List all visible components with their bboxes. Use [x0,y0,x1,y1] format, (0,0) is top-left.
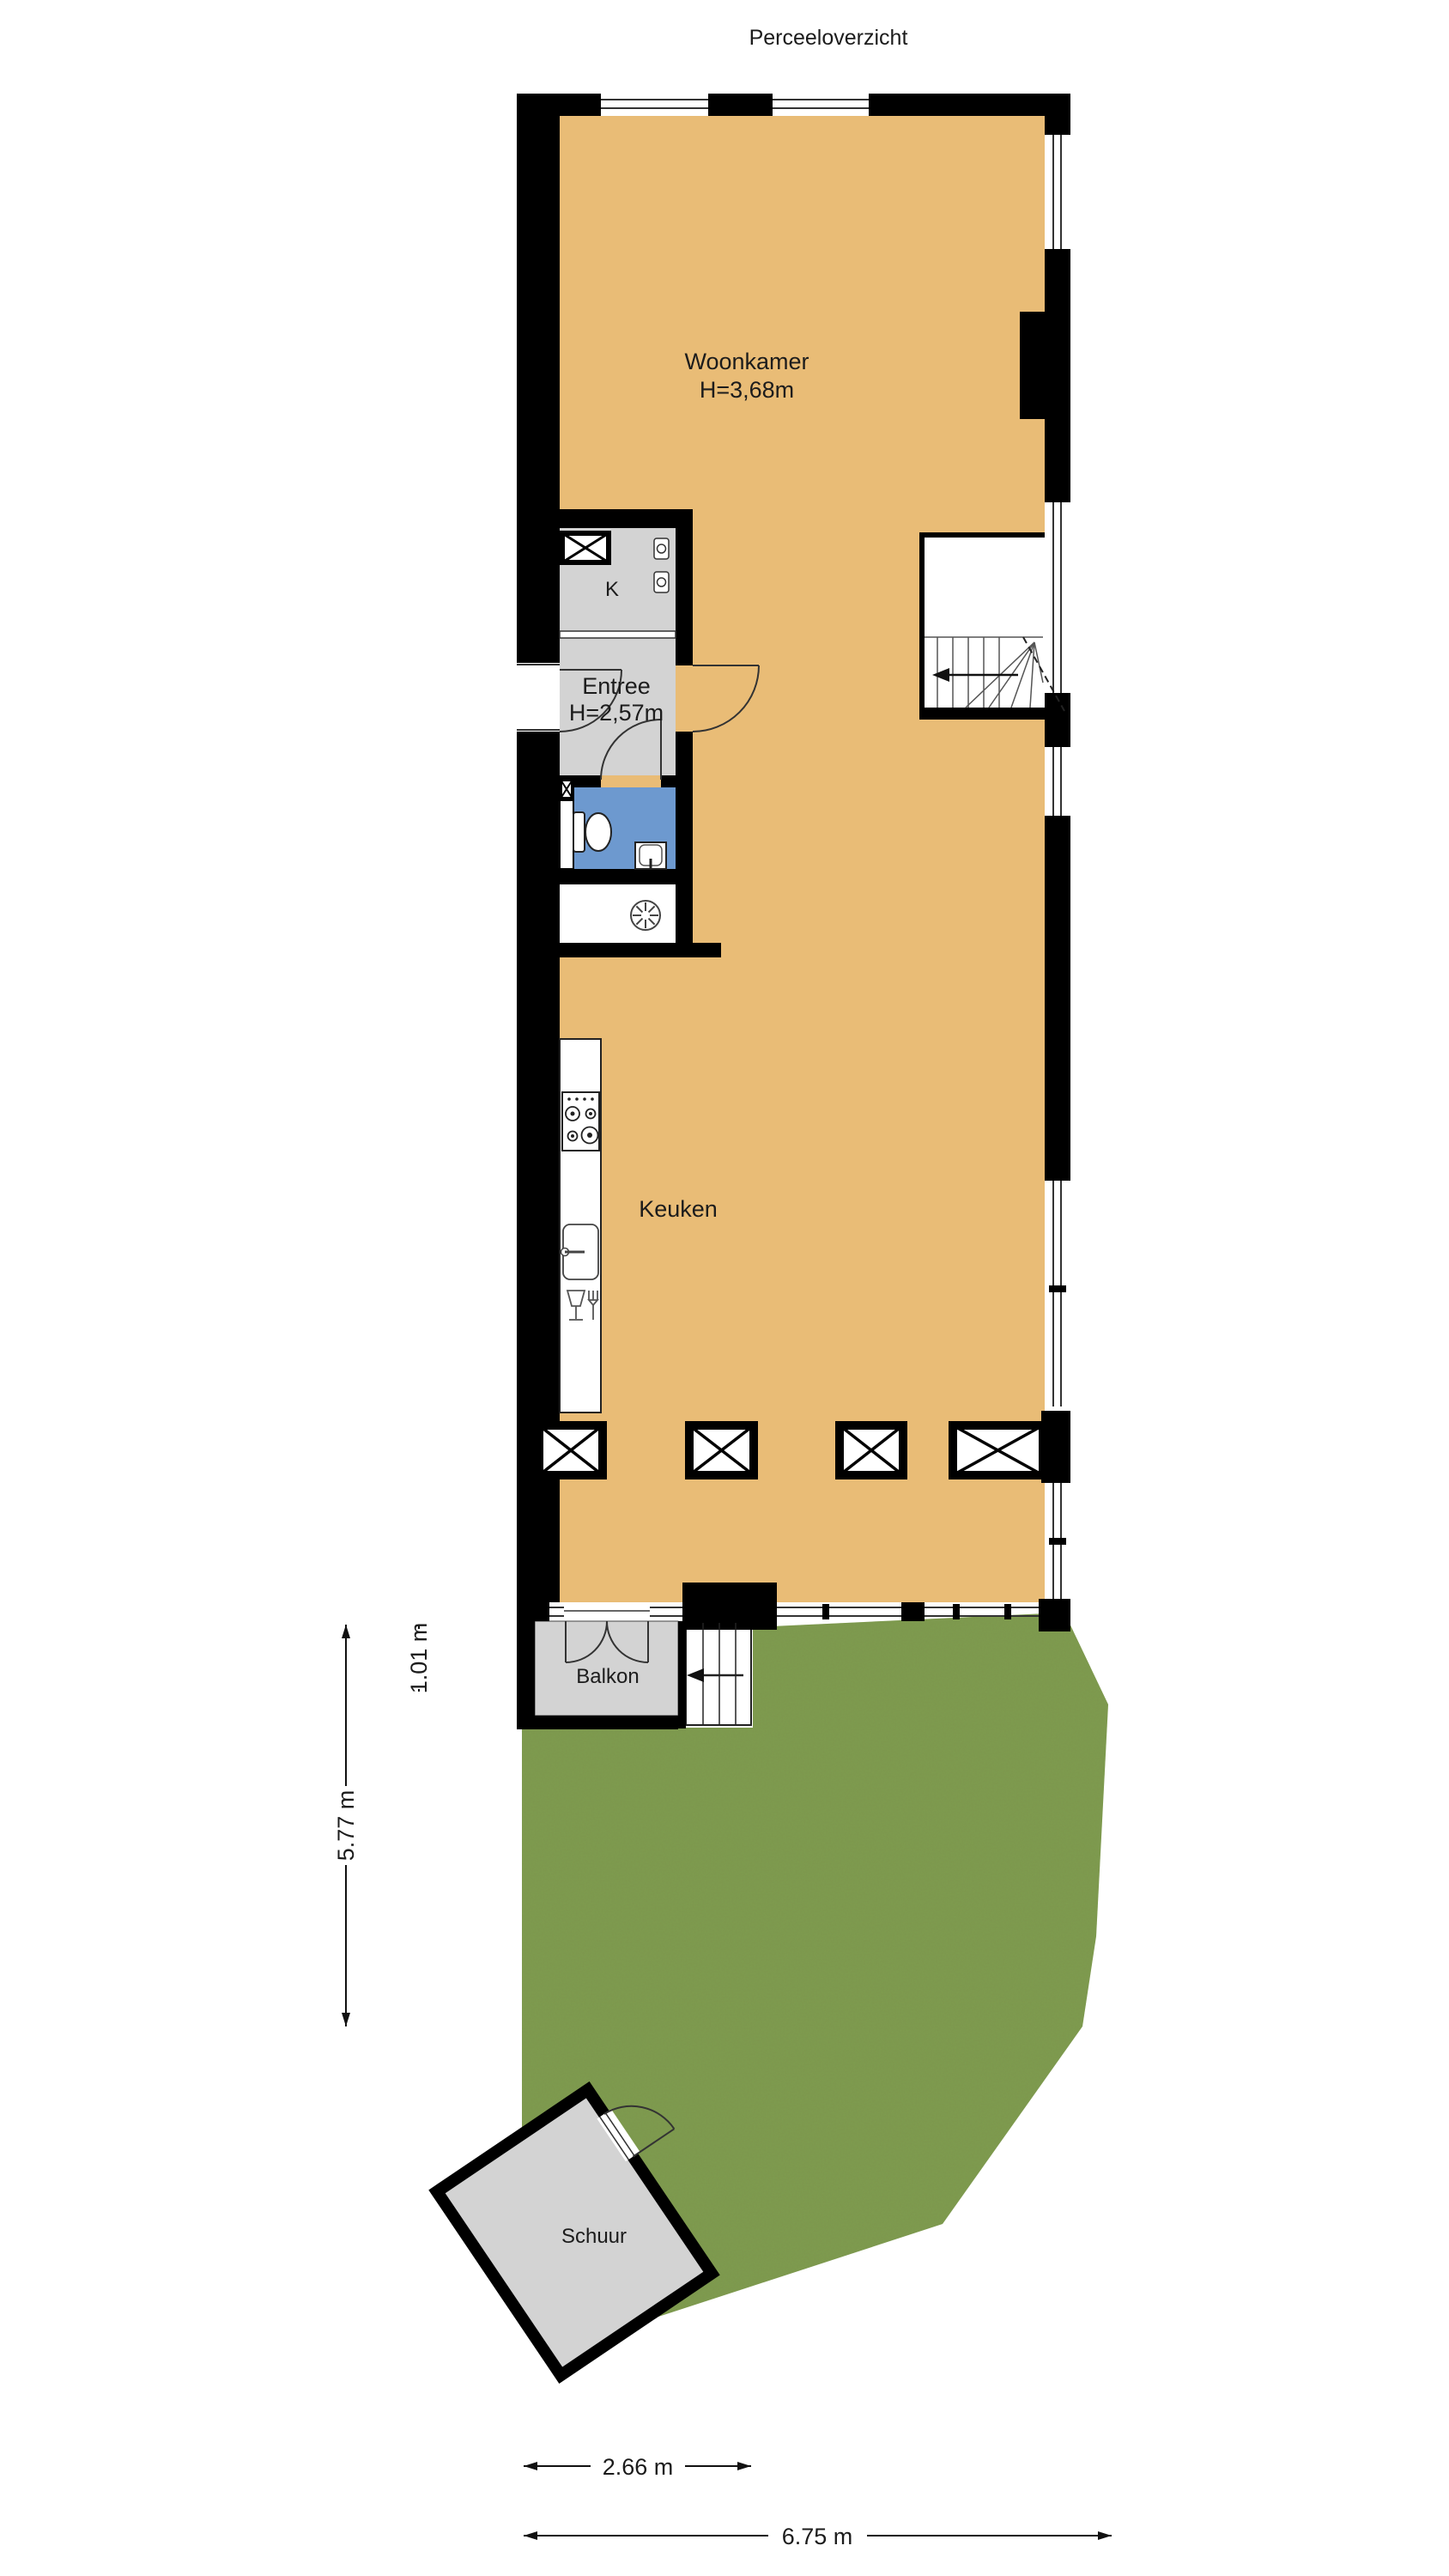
closet-sliding-door [560,631,676,638]
dim-balcony-depth: 1.01 m [406,1623,432,1694]
svg-text:2.66 m: 2.66 m [603,2454,674,2480]
wall-balkon-right [678,1621,686,1728]
shaft-box-4 [953,1425,1043,1475]
stove [562,1092,599,1151]
wall-left-balkon [517,1602,535,1729]
floorplan-svg: Perceeloverzicht Woonkamer H=3,68m K Ent… [0,0,1449,2576]
woonkamer-height-label: H=3,68m [700,377,794,403]
chimney-right [1020,312,1045,419]
wall-column-right-lower [676,732,693,943]
entree-label: Entree [582,673,651,699]
shaft-box-1 [539,1425,603,1475]
wall-right-3 [1045,816,1070,1181]
toilet [573,812,611,852]
wall-bath-utility [549,869,693,884]
wall-top-2 [708,94,773,116]
wall-top-right-corner [1045,116,1070,135]
svg-text:6.75 m: 6.75 m [782,2524,853,2549]
interior-stairs-floor [925,538,1045,708]
wall-bottom-pier [901,1602,925,1621]
wall-stairs-left [919,532,925,720]
kitchen-sink [561,1224,599,1279]
wall-bottom-left-corner [517,1602,549,1621]
bathroom-sink [635,842,666,869]
page-title: Perceeloverzicht [749,26,908,50]
balkon-label: Balkon [576,1665,639,1688]
wall-top-1 [517,94,601,116]
woonkamer-label: Woonkamer [684,349,809,374]
wall-closet-top [549,509,693,528]
wall-top-3 [869,94,1070,116]
wall-utility-bottom [549,943,721,957]
wall-entree-bath-2 [661,775,676,787]
wall-right-corner [1039,1599,1070,1631]
wall-left-upper [517,94,560,663]
wall-stairs-bottom [919,708,1045,720]
shaft-box-closet [562,533,609,562]
floorplan-page: Perceeloverzicht Woonkamer H=3,68m K Ent… [0,0,1449,2576]
wall-column-right-upper [676,509,693,665]
svg-text:5.77 m: 5.77 m [333,1790,359,1862]
entree-height-label: H=2,57m [569,700,664,726]
dim-garden-width-partial: 2.66 m [524,2452,751,2480]
dim-garden-depth: 5.77 m [333,1625,359,2026]
wall-balkon-bottom [517,1716,678,1729]
wall-bottom-stairblock [682,1583,777,1630]
keuken-label: Keuken [639,1196,718,1222]
kitchen-counter [560,1039,601,1413]
svg-text:1.01 m: 1.01 m [406,1623,432,1694]
shaft-box-2 [689,1425,754,1475]
dim-garden-width-total: 6.75 m [524,2522,1112,2549]
shaft-box-bathroom [560,780,573,869]
wall-right-1 [1045,249,1070,502]
schuur-label: Schuur [561,2225,627,2248]
shaft-box-3 [840,1425,903,1475]
wall-right-2 [1045,693,1070,747]
closet-label: K [605,578,619,601]
wall-stairs-top [919,532,1045,538]
ventilation-fan [631,901,660,930]
